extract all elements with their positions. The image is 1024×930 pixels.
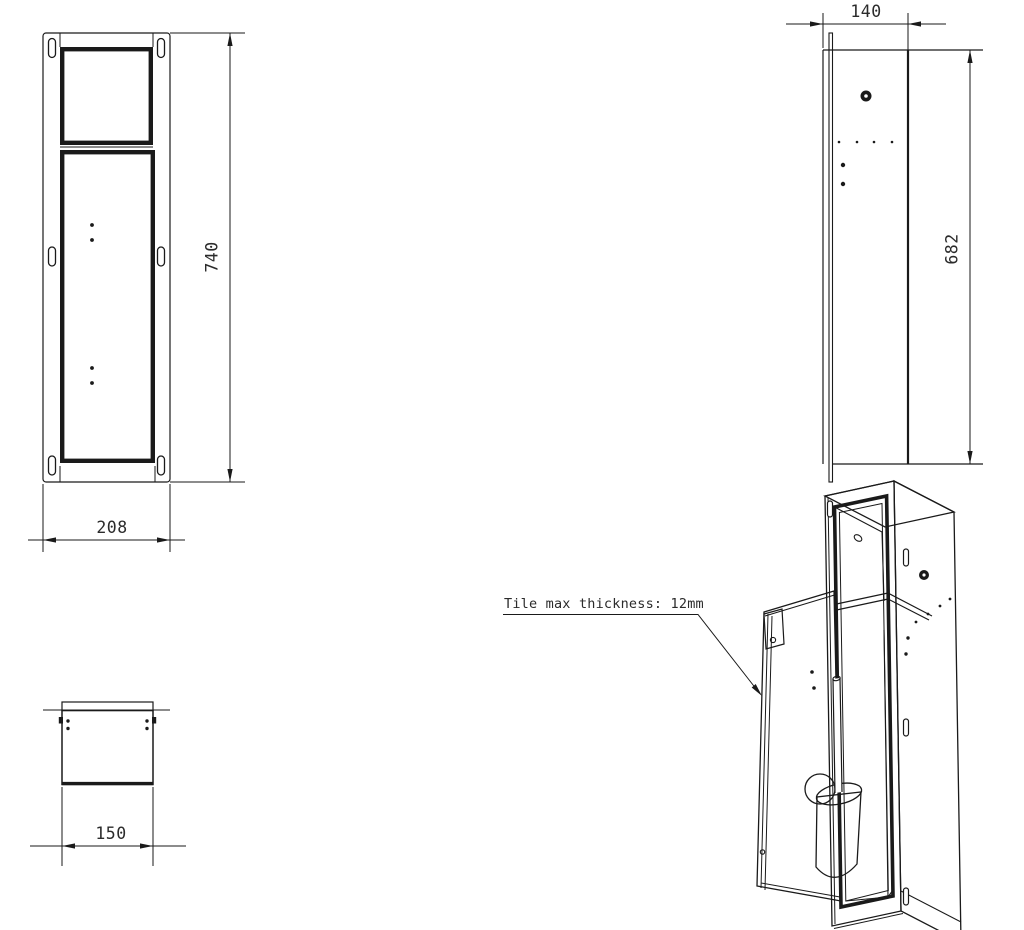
front-width-dimension: 208	[28, 484, 185, 552]
arrow-up-icon	[227, 33, 232, 46]
arrow-down-icon	[967, 451, 972, 464]
technical-drawing-page: 740 208 140	[0, 0, 1024, 930]
top-width-label: 150	[95, 824, 126, 843]
iso-toilet-brush	[805, 676, 864, 878]
front-corner-seams	[60, 33, 155, 482]
iso-door-screw	[760, 850, 764, 854]
front-door-holes	[90, 223, 94, 385]
arrow-down-icon	[227, 469, 232, 482]
iso-side-holes	[904, 570, 951, 656]
front-height-dimension: 740	[170, 33, 245, 482]
front-paper-compartment-frame	[62, 49, 151, 143]
iso-interior-upper	[835, 507, 885, 601]
top-hinge-marks	[59, 717, 156, 724]
arrow-up-icon	[967, 50, 972, 63]
iso-flange-edge-lines	[828, 498, 961, 929]
iso-interior-lower	[846, 630, 893, 901]
side-height-dimension: 682	[943, 50, 973, 464]
iso-right-face	[894, 481, 961, 930]
iso-opening-border	[835, 496, 894, 907]
iso-door-panel	[757, 591, 841, 901]
top-box-outline	[62, 711, 153, 785]
top-view: 150	[30, 702, 186, 866]
iso-brush-mount-ring	[805, 774, 835, 804]
side-depth-label: 140	[850, 2, 881, 21]
arrow-right-icon	[157, 537, 170, 542]
iso-opening-inner-line	[839, 504, 888, 902]
side-holes	[838, 91, 894, 187]
technical-drawing: 740 208 140	[0, 0, 1024, 930]
arrow-right-icon	[140, 843, 153, 848]
iso-leader-line	[503, 615, 757, 691]
iso-annotation-text: Tile max thickness: 12mm	[504, 596, 704, 612]
front-view: 740 208	[28, 33, 245, 552]
arrow-left-icon	[908, 21, 921, 26]
top-screw-holes	[66, 719, 148, 730]
top-width-dimension: 150	[30, 787, 186, 866]
front-mounting-slots	[49, 39, 165, 476]
front-height-label: 740	[203, 241, 222, 272]
side-depth-dimension: 140	[786, 2, 946, 50]
front-door-frame	[62, 152, 153, 461]
arrow-left-icon	[62, 843, 75, 848]
iso-view: Tile max thickness: 12mm	[503, 481, 961, 930]
arrow-right-icon	[810, 21, 823, 26]
iso-door-edge-lines	[761, 595, 840, 897]
side-flange-plate	[829, 33, 833, 482]
top-flange-lip	[62, 702, 153, 711]
arrow-left-icon	[43, 537, 56, 542]
iso-annotation: Tile max thickness: 12mm	[503, 596, 762, 696]
side-view: 140 682	[786, 2, 983, 482]
front-width-label: 208	[96, 518, 127, 537]
iso-door	[757, 591, 841, 901]
side-height-label: 682	[943, 233, 962, 264]
iso-door-holes	[810, 670, 816, 690]
